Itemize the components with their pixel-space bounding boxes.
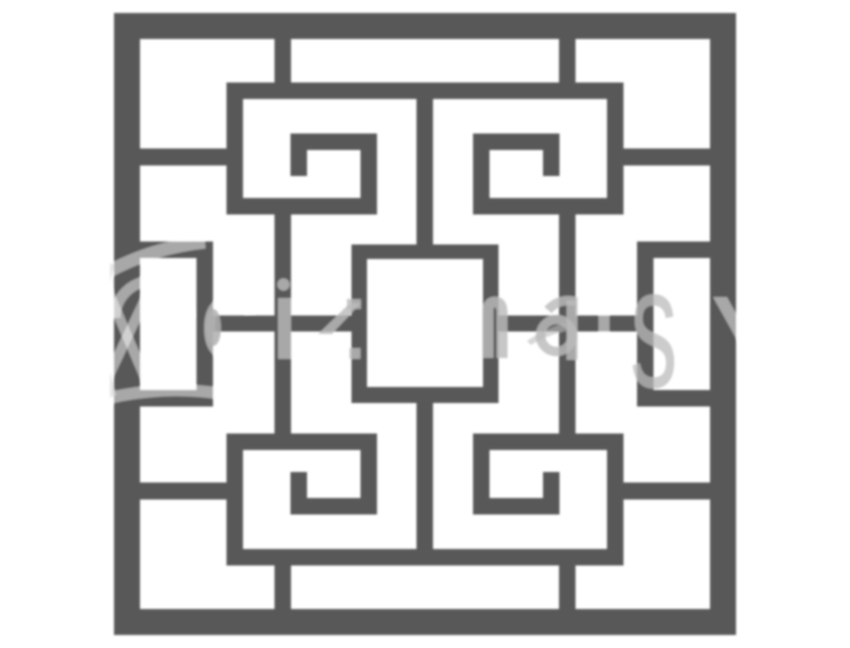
- svg-text:s: s: [630, 231, 678, 424]
